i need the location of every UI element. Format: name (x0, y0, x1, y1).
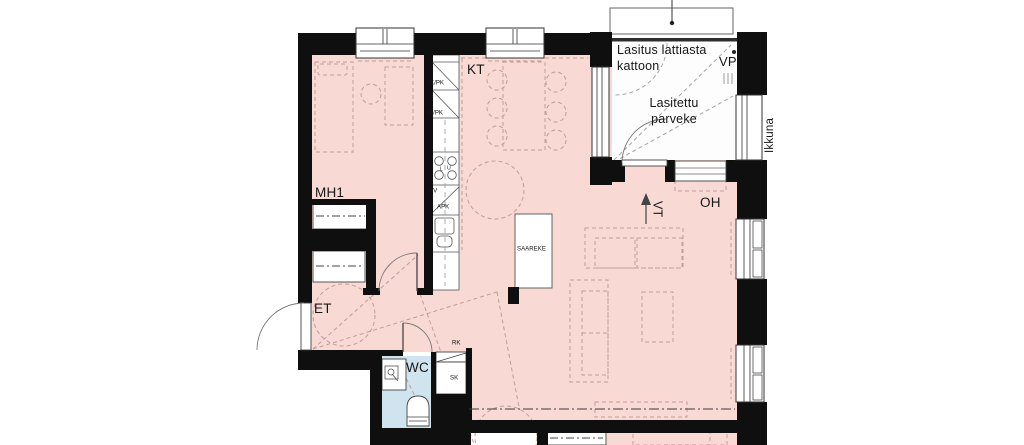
room-label-kt: KT (467, 61, 485, 79)
wall-et-south (298, 350, 382, 370)
balcony-glazing-note: Lasitus lattiasta kattoon (617, 42, 729, 75)
vt-label: VT (649, 201, 665, 227)
wall-balcony-east (737, 32, 767, 95)
balcony-door-leaf (622, 160, 667, 166)
wall-kitchen (424, 55, 433, 292)
fridge-label-lower: JK/PK (426, 109, 443, 117)
vp-label: VP (719, 54, 737, 71)
toilet (407, 396, 429, 426)
wall-mh2-divider (537, 420, 548, 445)
window-balcony-east (736, 95, 762, 160)
wall-island-nub (508, 287, 519, 304)
room-label-et: ET (314, 300, 332, 318)
floor-south-strip (471, 350, 540, 422)
entrance-door-swing (257, 303, 304, 350)
stove-label-l: L (440, 166, 443, 173)
room-label-mh1: MH1 (315, 184, 344, 202)
wall-wc-north (370, 350, 403, 356)
room-label-wc: WC (406, 359, 429, 377)
sk-label: SK (450, 374, 458, 382)
window-oh-2 (736, 345, 764, 402)
room-label-oh: OH (700, 194, 721, 212)
wall-balcony-south (726, 160, 737, 182)
balcony-name: Lasitettu parveke (628, 95, 720, 128)
wall-wc-west (370, 350, 382, 430)
fridge-label-upper: JK/PK (427, 79, 444, 87)
window-oh-1 (736, 219, 764, 279)
balcony-glazing-line (610, 38, 737, 42)
kitchen-cabinet-strip (432, 55, 459, 290)
window-balcony-west (592, 67, 609, 157)
wall-north (298, 33, 612, 55)
wall-south (445, 420, 767, 433)
floor-mh2 (605, 433, 737, 445)
wall-east (737, 160, 767, 219)
wall-east (737, 402, 767, 445)
leader-dot (670, 21, 674, 25)
closet (313, 251, 365, 282)
floor-plan-drawing (0, 0, 1024, 445)
apk-label: APK (437, 203, 449, 211)
wall-balcony-west-south (590, 157, 612, 185)
balcony-door-frame (675, 161, 726, 181)
wc-sink-unit (382, 359, 406, 390)
utility-cabinets (436, 352, 466, 394)
window-mh1 (356, 28, 414, 58)
wall-wc-east (431, 352, 436, 396)
stove-label-u: U (447, 165, 451, 172)
floor-plan: MH1 KT ET WC OH SAAREKE JK/PK JK/PK L U … (0, 0, 1024, 445)
wall-balcony-west-north (590, 32, 612, 67)
window-kt (486, 28, 544, 58)
wall-west (298, 33, 312, 303)
wall-east (737, 279, 767, 345)
window-annotation-ikkuna: Ikkuna (763, 97, 778, 153)
wall-closet-east (366, 199, 376, 288)
mv-label: MV (428, 187, 437, 195)
wall-nub (363, 288, 380, 295)
island-label: SAAREKE (517, 245, 546, 253)
entrance-door-leaf (301, 303, 311, 350)
rk-label: RK (452, 339, 461, 347)
closet (313, 204, 368, 229)
